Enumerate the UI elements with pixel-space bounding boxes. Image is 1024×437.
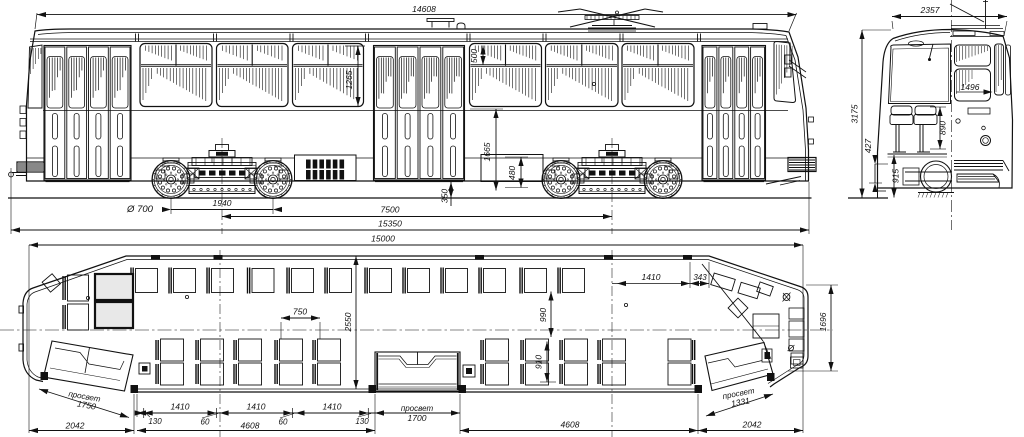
svg-text:60: 60 — [279, 418, 288, 427]
svg-text:890: 890 — [938, 121, 948, 135]
svg-text:60: 60 — [201, 418, 210, 427]
svg-text:Ø 700: Ø 700 — [126, 204, 154, 215]
svg-text:1700: 1700 — [408, 413, 427, 423]
svg-text:1940: 1940 — [213, 198, 232, 208]
svg-text:910: 910 — [534, 355, 544, 369]
svg-text:915: 915 — [891, 169, 901, 183]
svg-text:2042: 2042 — [742, 420, 762, 430]
svg-text:просвет: просвет — [401, 404, 434, 413]
svg-text:2042: 2042 — [65, 421, 85, 431]
svg-text:130: 130 — [355, 417, 369, 426]
svg-text:1665: 1665 — [482, 142, 492, 161]
svg-text:14608: 14608 — [412, 4, 436, 14]
svg-text:1410: 1410 — [323, 402, 342, 412]
svg-text:1410: 1410 — [642, 272, 661, 282]
svg-text:990: 990 — [538, 308, 548, 322]
svg-text:1696: 1696 — [818, 312, 828, 331]
svg-text:15350: 15350 — [378, 219, 402, 229]
svg-text:480: 480 — [507, 166, 517, 180]
svg-text:1410: 1410 — [171, 402, 190, 412]
svg-text:7500: 7500 — [381, 205, 400, 215]
svg-text:130: 130 — [148, 417, 162, 426]
svg-text:750: 750 — [293, 307, 307, 317]
svg-text:343: 343 — [693, 273, 707, 282]
svg-text:4608: 4608 — [561, 420, 580, 430]
svg-text:500: 500 — [469, 49, 479, 63]
svg-text:15000: 15000 — [371, 234, 395, 244]
svg-text:3175: 3175 — [850, 104, 860, 123]
svg-text:1410: 1410 — [247, 402, 266, 412]
svg-text:350: 350 — [440, 189, 450, 203]
svg-text:2550: 2550 — [343, 312, 353, 332]
svg-text:4608: 4608 — [241, 421, 260, 431]
svg-text:1265: 1265 — [344, 70, 354, 89]
svg-text:2357: 2357 — [920, 5, 940, 15]
svg-text:427: 427 — [863, 139, 873, 153]
svg-text:1496: 1496 — [961, 82, 980, 92]
